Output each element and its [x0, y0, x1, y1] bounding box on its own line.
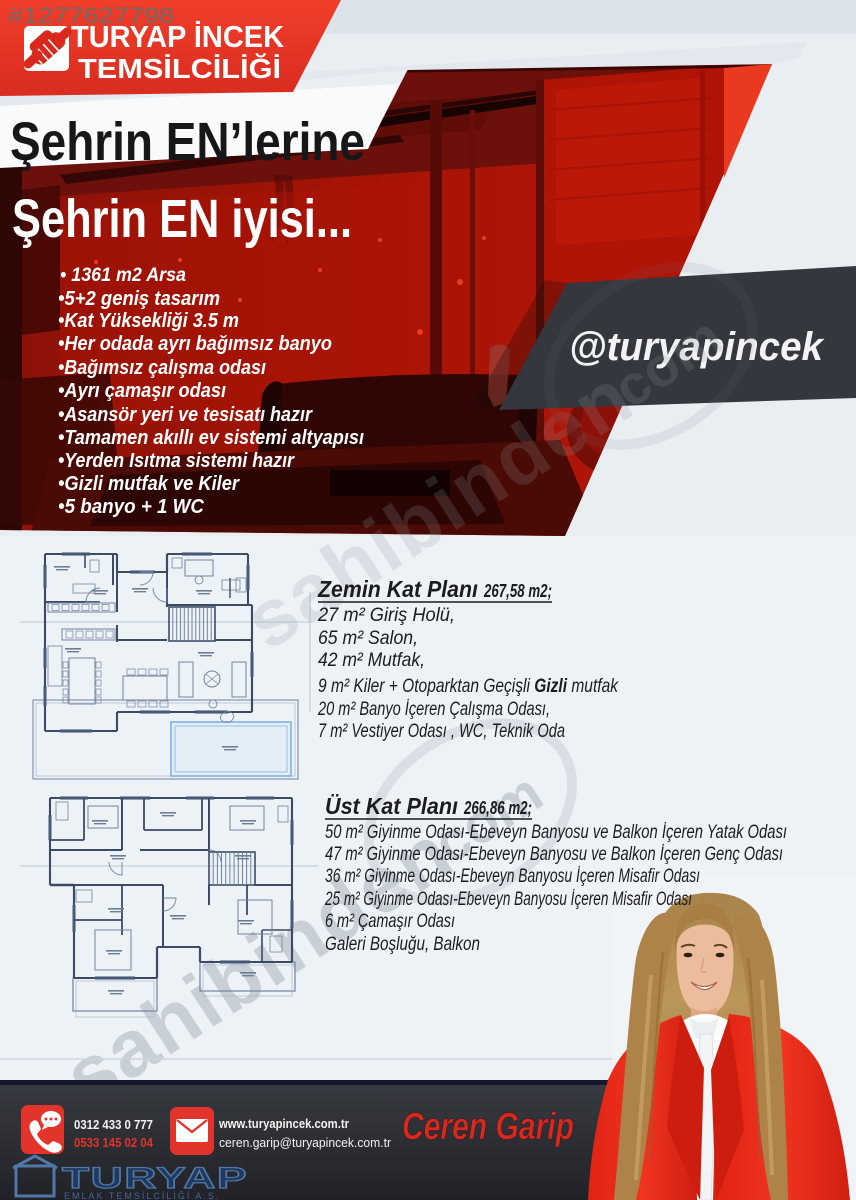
- svg-text:Şehrin EN’lerine: Şehrin EN’lerine: [10, 112, 365, 172]
- svg-text:7 m² Vestiyer Odası , WC, Tekn: 7 m² Vestiyer Odası , WC, Teknik Oda: [318, 721, 565, 742]
- svg-text:•Ayrı çamaşır odası: •Ayrı çamaşır odası: [58, 380, 226, 402]
- svg-text:0312 433 0 777: 0312 433 0 777: [74, 1117, 153, 1132]
- svg-text:42 m² Mutfak,: 42 m² Mutfak,: [318, 650, 425, 671]
- svg-text:•Yerden Isıtma sistemi hazır: •Yerden Isıtma sistemi hazır: [58, 450, 295, 472]
- svg-text:36 m² Giyinme Odası-Ebeveyn Ba: 36 m² Giyinme Odası-Ebeveyn Banyosu İçer…: [325, 866, 700, 887]
- svg-text:20 m² Banyo İçeren Çalışma Oda: 20 m² Banyo İçeren Çalışma Odası,: [317, 699, 550, 720]
- svg-text:Şehrin EN iyisi...: Şehrin EN iyisi...: [12, 189, 352, 249]
- svg-text:•Bağımsız çalışma odası: •Bağımsız çalışma odası: [58, 357, 266, 379]
- svg-text:Zemin Kat Planı: Zemin Kat Planı: [317, 576, 478, 602]
- svg-text:266,86 m2;: 266,86 m2;: [463, 798, 532, 818]
- svg-text:Üst Kat Planı: Üst Kat Planı: [325, 793, 458, 819]
- svg-text:TURYAP İNCEK: TURYAP İNCEK: [71, 19, 285, 54]
- svg-text:•5 banyo + 1 WC: •5 banyo + 1 WC: [58, 496, 205, 518]
- svg-text:6 m² Çamaşır Odası: 6 m² Çamaşır Odası: [325, 911, 455, 932]
- svg-text:EMLAK TEMSİLCİLİĞİ A.Ş.: EMLAK TEMSİLCİLİĞİ A.Ş.: [64, 1191, 220, 1200]
- svg-text:ceren.garip@turyapincek.com.tr: ceren.garip@turyapincek.com.tr: [219, 1136, 391, 1150]
- svg-text:50 m² Giyinme Odası-Ebeveyn Ba: 50 m² Giyinme Odası-Ebeveyn Banyosu ve B…: [325, 822, 787, 843]
- svg-text:•Tamamen akıllı ev sistemi alt: •Tamamen akıllı ev sistemi altyapısı: [58, 427, 364, 449]
- svg-text:TEMSİLCİLİĞİ: TEMSİLCİLİĞİ: [78, 53, 281, 84]
- svg-text:9 m² Kiler + Otoparktan Geçişl: 9 m² Kiler + Otoparktan Geçişli Gizli mu…: [318, 676, 619, 697]
- svg-text:•Gizli mutfak ve Kiler: •Gizli mutfak ve Kiler: [58, 473, 240, 495]
- svg-text:25 m² Giyinme Odası-Ebeveyn Ba: 25 m² Giyinme Odası-Ebeveyn Banyosu İçer…: [324, 889, 692, 910]
- svg-text:0533 145 02 04: 0533 145 02 04: [74, 1135, 154, 1150]
- svg-text:www.turyapincek.com.tr: www.turyapincek.com.tr: [218, 1117, 349, 1131]
- svg-text:Ceren Garip: Ceren Garip: [402, 1106, 574, 1148]
- svg-text:•Asansör yeri ve tesisatı hazı: •Asansör yeri ve tesisatı hazır: [58, 404, 313, 426]
- svg-text:Galeri Boşluğu, Balkon: Galeri Boşluğu, Balkon: [325, 934, 480, 955]
- svg-text:27 m² Giriş Holü,: 27 m² Giriş Holü,: [317, 605, 455, 626]
- svg-text:•Her odada ayrı bağımsız banyo: •Her odada ayrı bağımsız banyo: [58, 333, 332, 355]
- svg-text:• 1361 m2 Arsa: • 1361 m2 Arsa: [60, 265, 186, 286]
- svg-text:267,58 m2;: 267,58 m2;: [483, 581, 552, 601]
- svg-text:47 m² Giyinme Odası-Ebeveyn Ba: 47 m² Giyinme Odası-Ebeveyn Banyosu ve B…: [325, 844, 783, 865]
- svg-text:•Kat Yüksekliği 3.5 m: •Kat Yüksekliği 3.5 m: [58, 310, 239, 332]
- svg-text:•5+2 geniş tasarım: •5+2 geniş tasarım: [58, 288, 220, 310]
- svg-text:65 m² Salon,: 65 m² Salon,: [318, 628, 418, 649]
